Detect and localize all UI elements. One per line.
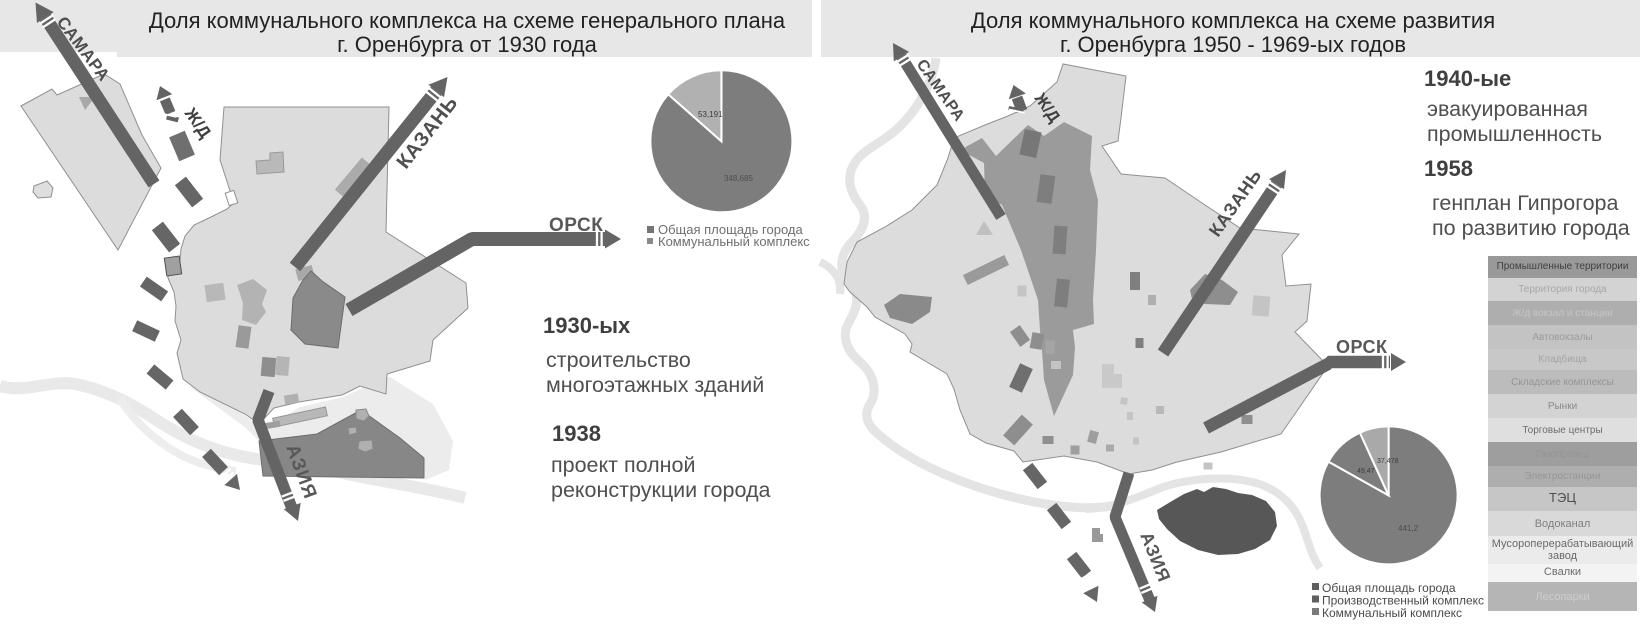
svg-text:441,2: 441,2: [1398, 524, 1419, 533]
svg-text:ОРСК: ОРСК: [1336, 337, 1388, 357]
svg-text:348,685: 348,685: [724, 174, 753, 183]
svg-text:Коммунальный комплекс: Коммунальный комплекс: [658, 234, 810, 249]
svg-text:ОРСК: ОРСК: [549, 215, 603, 236]
svg-text:53,191: 53,191: [698, 110, 723, 119]
svg-text:37,478: 37,478: [1377, 458, 1399, 465]
svg-text:49,47: 49,47: [1357, 468, 1375, 475]
svg-text:Коммунальный комплекс: Коммунальный комплекс: [1322, 606, 1462, 620]
